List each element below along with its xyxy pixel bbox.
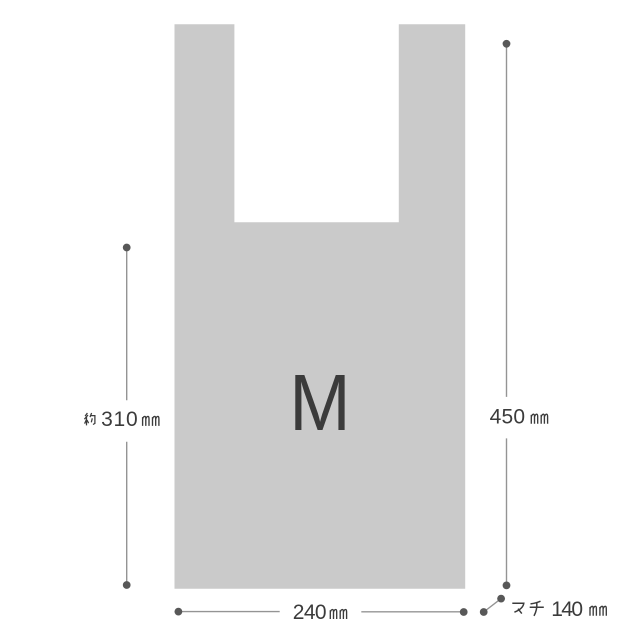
svg-text:310: 310: [101, 408, 138, 431]
svg-text:140: 140: [551, 598, 583, 621]
svg-text:M: M: [289, 359, 350, 447]
svg-text:450: 450: [490, 406, 525, 429]
svg-text:240: 240: [293, 601, 327, 624]
